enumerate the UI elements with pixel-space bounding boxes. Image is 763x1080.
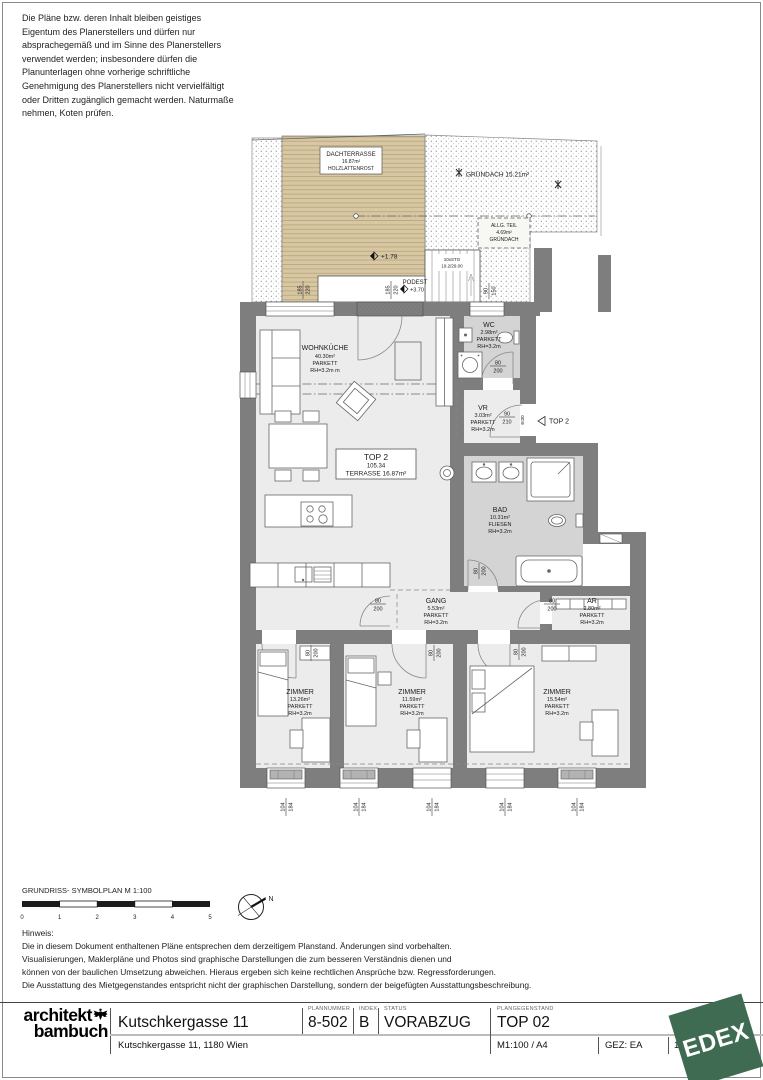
bathtub <box>516 556 582 586</box>
svg-text:VR: VR <box>478 405 488 412</box>
svg-text:80: 80 <box>429 650 435 656</box>
svg-text:200: 200 <box>482 566 488 575</box>
svg-text:200: 200 <box>522 647 528 656</box>
allg-teil-label: ALLG. TEIL 4.69m² GRÜNDACH <box>478 218 530 248</box>
svg-text:RH=3.2m m: RH=3.2m m <box>310 368 340 374</box>
svg-text:19.2/29.00: 19.2/29.00 <box>441 264 463 269</box>
svg-text:RH=3.2m: RH=3.2m <box>580 620 604 626</box>
plan-sheet: Die Pläne bzw. deren Inhalt bleiben geis… <box>0 0 763 1080</box>
svg-text:104: 104 <box>572 802 578 811</box>
svg-text:0: 0 <box>20 915 24 921</box>
podest: PODEST +3.70 <box>318 276 428 302</box>
svg-text:80: 80 <box>375 599 381 605</box>
svg-text:200: 200 <box>314 648 320 657</box>
svg-text:80: 80 <box>514 649 520 655</box>
svg-text:3.03m²: 3.03m² <box>474 413 491 419</box>
hinweis-line: können von der baulichen Umsetzung abwei… <box>22 966 722 979</box>
svg-text:PARKETT: PARKETT <box>580 613 606 619</box>
svg-text:80: 80 <box>495 361 501 367</box>
svg-text:GANG: GANG <box>426 598 447 605</box>
window <box>486 768 524 788</box>
svg-text:2.98m²: 2.98m² <box>480 330 497 336</box>
kitchen-island <box>265 495 352 527</box>
divider <box>668 1037 669 1054</box>
dim-window: 104 184 <box>500 798 514 816</box>
stairwell: 10xSTG 19.2/29.00 <box>425 250 480 302</box>
svg-text:105.34: 105.34 <box>367 464 386 470</box>
svg-text:185: 185 <box>298 285 304 294</box>
divider <box>110 1034 763 1036</box>
svg-text:90: 90 <box>484 288 490 294</box>
plangegenstand-label: PLANGEGENSTAND <box>497 1006 554 1012</box>
dim-window: 104 184 <box>572 798 586 816</box>
entry-label: TOP 2 <box>549 419 569 426</box>
svg-text:210: 210 <box>502 420 511 426</box>
svg-text:4.69m²: 4.69m² <box>496 230 512 236</box>
svg-text:200: 200 <box>493 369 502 375</box>
scale-bar: 0 1 2 3 4 5 <box>20 901 212 921</box>
svg-text:220: 220 <box>394 285 400 294</box>
svg-text:RH=3.2m: RH=3.2m <box>400 711 424 717</box>
svg-text:WOHNKÜCHE: WOHNKÜCHE <box>302 344 349 352</box>
svg-text:11.59m²: 11.59m² <box>402 697 422 703</box>
svg-text:4: 4 <box>171 915 175 921</box>
eagle-icon <box>93 1008 108 1021</box>
svg-text:N: N <box>269 896 274 903</box>
svg-text:5: 5 <box>208 915 212 921</box>
svg-text:184: 184 <box>435 802 441 811</box>
divider <box>598 1037 599 1054</box>
bed <box>346 656 376 726</box>
svg-text:PARKETT: PARKETT <box>471 420 497 426</box>
scale-title: GRUNDRISS- SYMBOLPLAN M 1:100 <box>22 886 152 895</box>
svg-text:16.87m²: 16.87m² <box>342 159 361 165</box>
svg-text:RH=3.2m: RH=3.2m <box>545 711 569 717</box>
wardrobe <box>542 646 596 661</box>
divider <box>110 1008 111 1054</box>
floor-plan-drawing: DACHTERRASSE 16.87m² HOLZLATTENROST GRÜN… <box>0 0 763 1080</box>
svg-text:ALLG. TEIL: ALLG. TEIL <box>491 223 517 229</box>
svg-text:184: 184 <box>362 802 368 811</box>
svg-text:RH=3.2m: RH=3.2m <box>288 711 312 717</box>
svg-text:RH=3.2m: RH=3.2m <box>471 427 495 433</box>
svg-text:TERRASSE 16.87m²: TERRASSE 16.87m² <box>346 471 408 478</box>
project-title: Kutschkergasse 11 <box>118 1014 249 1032</box>
window <box>558 768 596 788</box>
bed <box>258 650 288 716</box>
svg-text:PARKETT: PARKETT <box>545 704 571 710</box>
svg-text:15.54m²: 15.54m² <box>547 697 567 703</box>
window <box>266 302 334 316</box>
svg-text:+1.78: +1.78 <box>381 254 398 261</box>
plangegenstand-value: TOP 02 <box>497 1014 550 1032</box>
edex-logo: EDEX <box>669 994 763 1080</box>
svg-text:PARKETT: PARKETT <box>313 361 339 367</box>
svg-text:PARKETT: PARKETT <box>477 337 503 343</box>
svg-text:RH=3.2m: RH=3.2m <box>488 529 512 535</box>
shower <box>527 458 574 501</box>
index-label: INDEX <box>359 1006 377 1012</box>
divider <box>378 1008 379 1034</box>
svg-text:200: 200 <box>373 607 382 613</box>
svg-text:FLIESEN: FLIESEN <box>489 522 512 528</box>
dachterrasse-label: DACHTERRASSE 16.87m² HOLZLATTENROST <box>320 147 382 174</box>
gruendach-label: GRÜNDACH 15.21m² <box>466 171 530 179</box>
svg-text:ZIMMER: ZIMMER <box>543 689 571 696</box>
title-block: architekt bambuch Kutschkergasse 11 Kuts… <box>0 1002 763 1079</box>
svg-text:184: 184 <box>508 802 514 811</box>
unit-summary-box: TOP 2 105.34 TERRASSE 16.87m² <box>336 449 416 479</box>
svg-text:2: 2 <box>96 915 100 921</box>
dim-window: 104 184 <box>427 798 441 816</box>
svg-text:10xSTG: 10xSTG <box>444 257 461 262</box>
double-bed <box>470 666 534 752</box>
divider <box>353 1008 354 1034</box>
svg-text:PARKETT: PARKETT <box>424 613 450 619</box>
hinweis-title: Hinweis: <box>22 927 722 940</box>
svg-text:184: 184 <box>580 802 586 811</box>
kitchen-counter <box>250 563 390 587</box>
svg-text:PARKETT: PARKETT <box>288 704 314 710</box>
svg-text:200: 200 <box>547 607 556 613</box>
svg-text:80: 80 <box>306 650 312 656</box>
wc-sink <box>459 328 472 342</box>
svg-text:ZIMMER: ZIMMER <box>398 689 426 696</box>
svg-text:TOP 2: TOP 2 <box>364 452 389 462</box>
wardrobe <box>436 318 453 406</box>
format-value: M1:100 / A4 <box>497 1040 548 1051</box>
svg-text:200: 200 <box>437 648 443 657</box>
terrace-edge-strip <box>252 138 282 302</box>
window <box>413 768 451 788</box>
entry-arrow-icon <box>538 417 545 426</box>
status-label: STATUS <box>384 1006 407 1012</box>
drawn-by: GEZ: EA <box>605 1040 642 1051</box>
architect-logo-line2: bambuch <box>34 1021 108 1041</box>
hinweis-line: Die in diesem Dokument enthaltenen Pläne… <box>22 940 722 953</box>
fire-rating-label: EI30 <box>520 415 525 425</box>
architect-logo: architekt bambuch <box>8 1007 108 1039</box>
svg-text:PARKETT: PARKETT <box>400 704 426 710</box>
svg-text:3: 3 <box>133 915 137 921</box>
svg-text:104: 104 <box>354 802 360 811</box>
hinweis-line: Die Ausstattung des Mietgegenstandes ent… <box>22 979 722 992</box>
dim-window: 104 184 <box>281 798 295 816</box>
svg-text:WC: WC <box>483 322 495 329</box>
window <box>240 372 256 398</box>
hinweis-note: Hinweis: Die in diesem Dokument enthalte… <box>22 927 722 992</box>
svg-text:184: 184 <box>289 802 295 811</box>
svg-text:185: 185 <box>386 285 392 294</box>
window <box>470 302 504 316</box>
plannummer-label: PLANNUMMER <box>308 1006 350 1012</box>
sofa <box>260 330 300 414</box>
svg-text:104: 104 <box>281 802 287 811</box>
svg-text:DACHTERRASSE: DACHTERRASSE <box>326 152 375 158</box>
svg-text:150: 150 <box>492 286 498 295</box>
svg-text:104: 104 <box>427 802 433 811</box>
svg-text:10.31m²: 10.31m² <box>490 515 510 521</box>
divider <box>490 1008 491 1054</box>
project-address: Kutschkergasse 11, 1180 Wien <box>118 1040 248 1051</box>
svg-text:220: 220 <box>306 285 312 294</box>
svg-text:5.53m²: 5.53m² <box>427 606 444 612</box>
window <box>340 768 378 788</box>
svg-text:2.80m²: 2.80m² <box>583 606 600 612</box>
svg-text:80: 80 <box>474 568 480 574</box>
svg-text:1: 1 <box>58 915 62 921</box>
status-value: VORABZUG <box>384 1014 471 1032</box>
svg-text:AR: AR <box>587 598 597 605</box>
svg-text:RH=3.2m: RH=3.2m <box>477 344 501 350</box>
divider <box>302 1008 303 1034</box>
svg-text:ZIMMER: ZIMMER <box>286 689 314 696</box>
svg-text:PODEST: PODEST <box>403 280 428 286</box>
level-marker-icon: +1.78 <box>370 252 398 261</box>
svg-text:80: 80 <box>549 599 555 605</box>
boiler <box>440 466 454 480</box>
north-compass-icon: N <box>238 895 274 920</box>
window <box>267 768 305 788</box>
index-value: B <box>359 1014 369 1032</box>
svg-text:+3.70: +3.70 <box>410 288 424 294</box>
svg-text:BAD: BAD <box>493 507 507 514</box>
svg-text:GRÜNDACH: GRÜNDACH <box>490 236 519 243</box>
svg-text:40.30m²: 40.30m² <box>315 354 335 360</box>
svg-text:104: 104 <box>500 802 506 811</box>
side-table <box>378 672 391 685</box>
dim-window: 104 184 <box>354 798 368 816</box>
terrace-door-sill <box>357 302 423 316</box>
svg-text:RH=3.2m: RH=3.2m <box>424 620 448 626</box>
hinweis-line: Visualisierungen, Maklerpläne und Photos… <box>22 953 722 966</box>
plannummer-value: 8-502 <box>308 1014 348 1032</box>
svg-text:90: 90 <box>504 412 510 418</box>
svg-text:13.26m²: 13.26m² <box>290 697 310 703</box>
svg-text:HOLZLATTENROST: HOLZLATTENROST <box>328 166 374 172</box>
washing-machine <box>458 352 482 378</box>
